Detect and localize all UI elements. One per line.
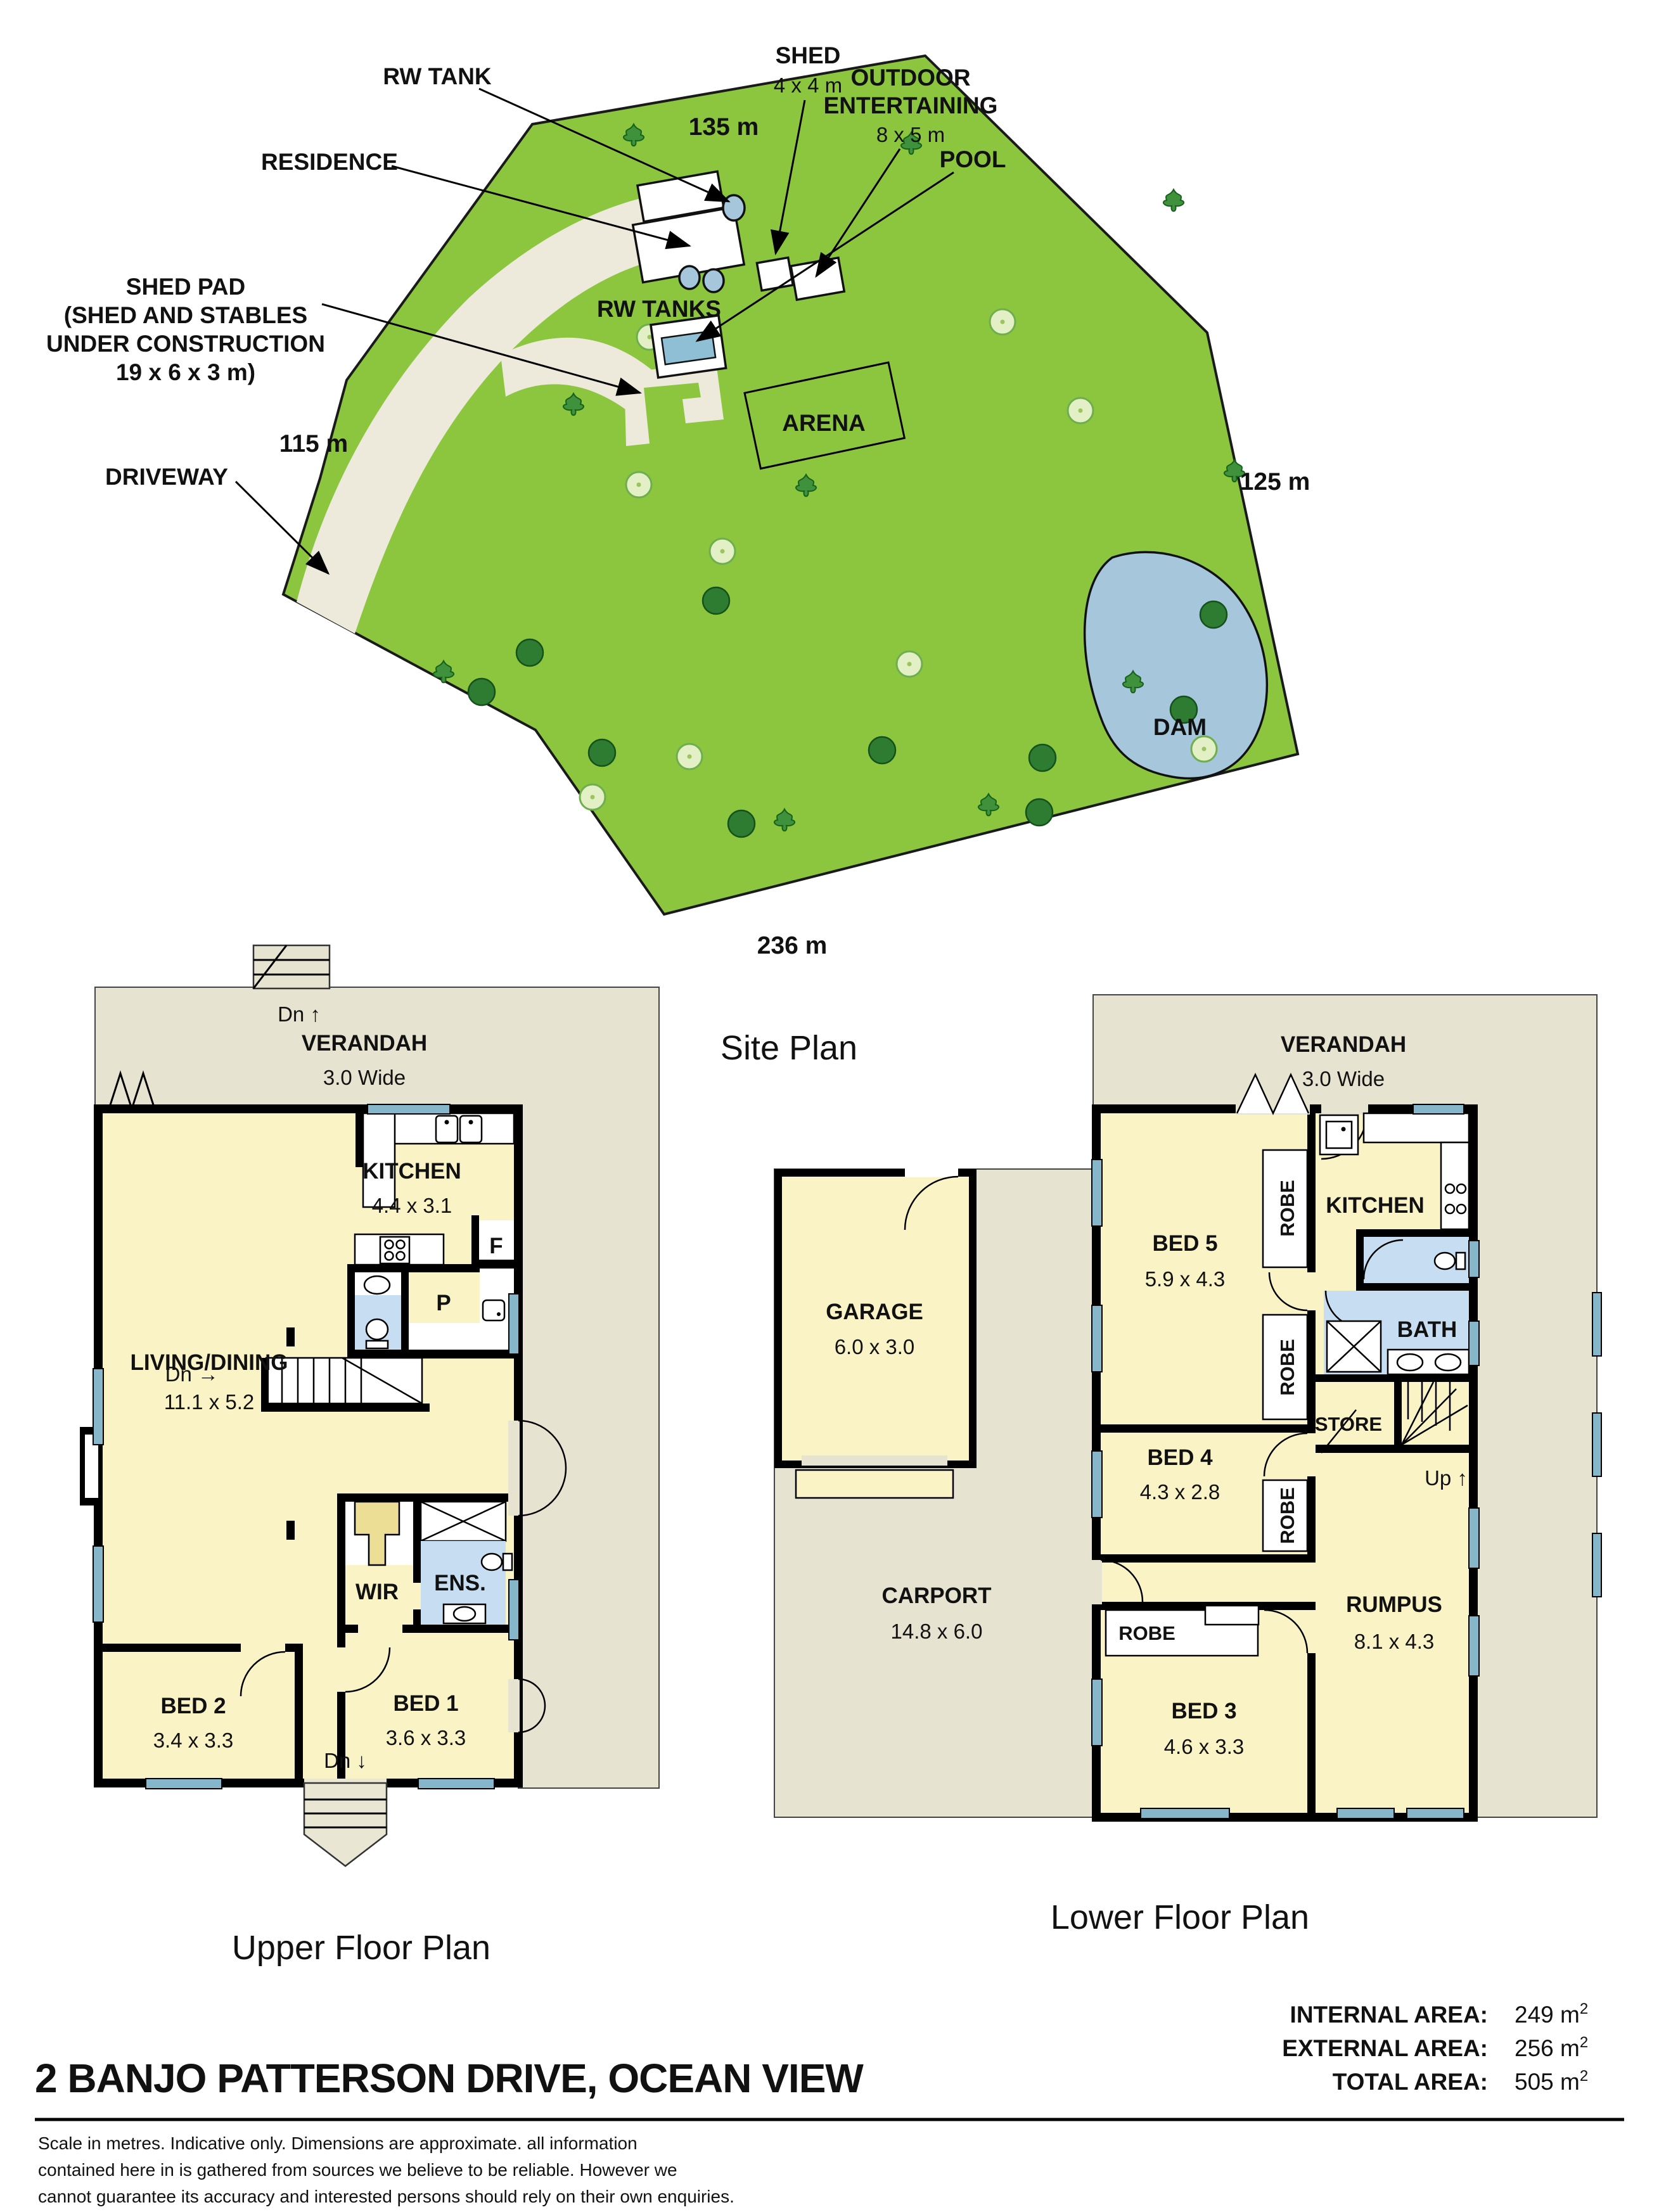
lower-stairs-label: Up ↑ [1425, 1466, 1468, 1490]
fridge-label: F [489, 1234, 503, 1258]
upper-exterior-stairs-top [253, 945, 330, 988]
rumpus-label: RUMPUS [1346, 1592, 1442, 1617]
rw-tank-label: RW TANK [383, 63, 492, 89]
lower-verandah-label: VERANDAH [1281, 1032, 1406, 1057]
upper-stairs-bottom-label: Dn ↓ [324, 1749, 367, 1772]
boundary-right-label: 125 m [1240, 468, 1310, 495]
ens-label: ENS. [434, 1571, 486, 1595]
carport-label: CARPORT [881, 1583, 991, 1608]
disclaimer-line: Scale in metres. Indicative only. Dimens… [38, 2133, 637, 2153]
pantry-label: P [436, 1291, 451, 1315]
property-boundary [283, 56, 1298, 914]
address: 2 BANJO PATTERSON DRIVE, OCEAN VIEW [35, 2055, 864, 2101]
upper-plan-caption: Upper Floor Plan [232, 1929, 490, 1967]
site-plan: RW TANK 135 m SHED 4 x 4 m OUTDOOR ENTER… [46, 42, 1310, 1067]
site-plan-caption: Site Plan [721, 1029, 857, 1067]
upper-kitchen-dims: 4.4 x 3.1 [372, 1194, 452, 1217]
shed-label: SHED [776, 42, 841, 68]
upper-verandah-label: VERANDAH [302, 1031, 427, 1056]
tree-icon [990, 309, 1015, 335]
lower-floor-plan: VERANDAH 3.0 Wide GARAGE 6.0 x 3.0 CARPO… [774, 995, 1601, 1936]
upper-kitchen-label: KITCHEN [362, 1159, 461, 1184]
wir-label: WIR [355, 1580, 399, 1604]
dam-label: DAM [1153, 714, 1207, 740]
garage-label: GARAGE [826, 1300, 923, 1324]
bed4-label: BED 4 [1147, 1445, 1213, 1470]
tree-icon [516, 639, 543, 666]
area-row-label: TOTAL AREA: [1333, 2069, 1488, 2095]
bed3-dims: 4.6 x 3.3 [1164, 1735, 1245, 1758]
shed-pad-label-1: SHED PAD [126, 274, 245, 300]
upper-exterior-stairs-bottom [304, 1779, 387, 1866]
garage-dims: 6.0 x 3.0 [835, 1335, 915, 1359]
tree-icon [1163, 189, 1184, 211]
disclaimer-line: contained here in is gathered from sourc… [38, 2160, 677, 2180]
boundary-left-label: 115 m [279, 430, 348, 457]
robe-label: ROBE [1118, 1622, 1175, 1644]
bed1-dims: 3.6 x 3.3 [386, 1726, 466, 1749]
disclaimer-line: cannot guarantee its accuracy and intere… [38, 2187, 734, 2206]
upper-floor-plan: Dn ↑ VERANDAH 3.0 Wide KITCHEN 4.4 x 3.1… [80, 945, 659, 1967]
tree-icon [626, 472, 651, 497]
carport-dims: 14.8 x 6.0 [891, 1620, 983, 1643]
tree-icon [677, 744, 702, 769]
robe-label: ROBE [1276, 1339, 1298, 1396]
driveway-label: DRIVEWAY [105, 464, 228, 490]
tree-icon [589, 739, 615, 766]
bed5-label: BED 5 [1152, 1231, 1217, 1256]
boundary-bottom-label: 236 m [757, 932, 828, 959]
robe-label: ROBE [1276, 1180, 1298, 1237]
lower-kitchen-label: KITCHEN [1326, 1193, 1425, 1218]
living-dims: 11.1 x 5.2 [164, 1390, 255, 1414]
tree-icon [869, 737, 895, 764]
rw-tank-shape [723, 195, 745, 221]
tree-icon [897, 651, 922, 677]
bed3-label: BED 3 [1171, 1699, 1236, 1723]
shed-pad-label-4: 19 x 6 x 3 m) [116, 359, 255, 385]
robe-label: ROBE [1276, 1487, 1298, 1544]
rumpus-dims: 8.1 x 4.3 [1354, 1630, 1435, 1653]
footer: 2 BANJO PATTERSON DRIVE, OCEAN VIEW INTE… [35, 2000, 1624, 2206]
lower-verandah-dims: 3.0 Wide [1302, 1067, 1385, 1090]
rw-tank-shape [703, 269, 724, 292]
tree-icon [1191, 736, 1217, 762]
outdoor-dims: 8 x 5 m [876, 123, 945, 146]
wall-stub [286, 1521, 295, 1540]
bed2-label: BED 2 [160, 1694, 226, 1718]
pool-label: POOL [940, 146, 1006, 172]
tree-icon [580, 784, 605, 810]
area-row-value: 249 m2 [1515, 2000, 1588, 2028]
bed2-dims: 3.4 x 3.3 [153, 1729, 234, 1752]
tree-icon [468, 679, 495, 705]
garage [778, 1168, 973, 1498]
area-row-value: 256 m2 [1515, 2034, 1588, 2061]
area-table: INTERNAL AREA: 249 m2 EXTERNAL AREA: 256… [1282, 2000, 1588, 2095]
residence-label: RESIDENCE [261, 149, 398, 175]
upper-stairs-top-label: Dn ↑ [278, 1002, 321, 1026]
tree-icon [703, 587, 729, 614]
wall-stub [286, 1327, 295, 1346]
shed-pad-label-2: (SHED AND STABLES [64, 302, 307, 328]
outdoor-label-2: ENTERTAINING [824, 93, 998, 118]
area-row-label: EXTERNAL AREA: [1282, 2035, 1488, 2061]
tree-icon [1068, 398, 1093, 423]
plan-canvas: RW TANK 135 m SHED 4 x 4 m OUTDOOR ENTER… [0, 0, 1659, 2212]
area-row-value: 505 m2 [1515, 2068, 1588, 2095]
rw-tanks-label: RW TANKS [597, 296, 721, 322]
bath-label: BATH [1397, 1317, 1457, 1342]
area-row-label: INTERNAL AREA: [1290, 2002, 1488, 2028]
boundary-top-label: 135 m [689, 113, 759, 141]
floorplan-sheet: { "site_plan": { "caption": "Site Plan",… [0, 0, 1659, 2212]
pool-shape [651, 316, 726, 378]
upper-stairs-mid-label: Dn → [165, 1362, 219, 1386]
upper-verandah-dims: 3.0 Wide [323, 1066, 406, 1089]
shed-pad-label-3: UNDER CONSTRUCTION [46, 331, 325, 357]
outdoor-label-1: OUTDOOR [850, 65, 970, 91]
lower-plan-caption: Lower Floor Plan [1051, 1898, 1309, 1936]
store-label: STORE [1315, 1413, 1382, 1435]
tree-icon [1029, 745, 1056, 771]
rw-tank-shape [679, 266, 700, 289]
tree-icon [710, 539, 735, 564]
tree-icon [1026, 799, 1053, 826]
upper-house-walls [98, 1109, 518, 1783]
bed4-dims: 4.3 x 2.8 [1140, 1480, 1220, 1504]
arena-label: ARENA [782, 410, 866, 436]
bed1-label: BED 1 [393, 1691, 458, 1716]
bed5-dims: 5.9 x 4.3 [1145, 1267, 1226, 1291]
tree-icon [1200, 601, 1227, 628]
tree-icon [728, 810, 755, 837]
